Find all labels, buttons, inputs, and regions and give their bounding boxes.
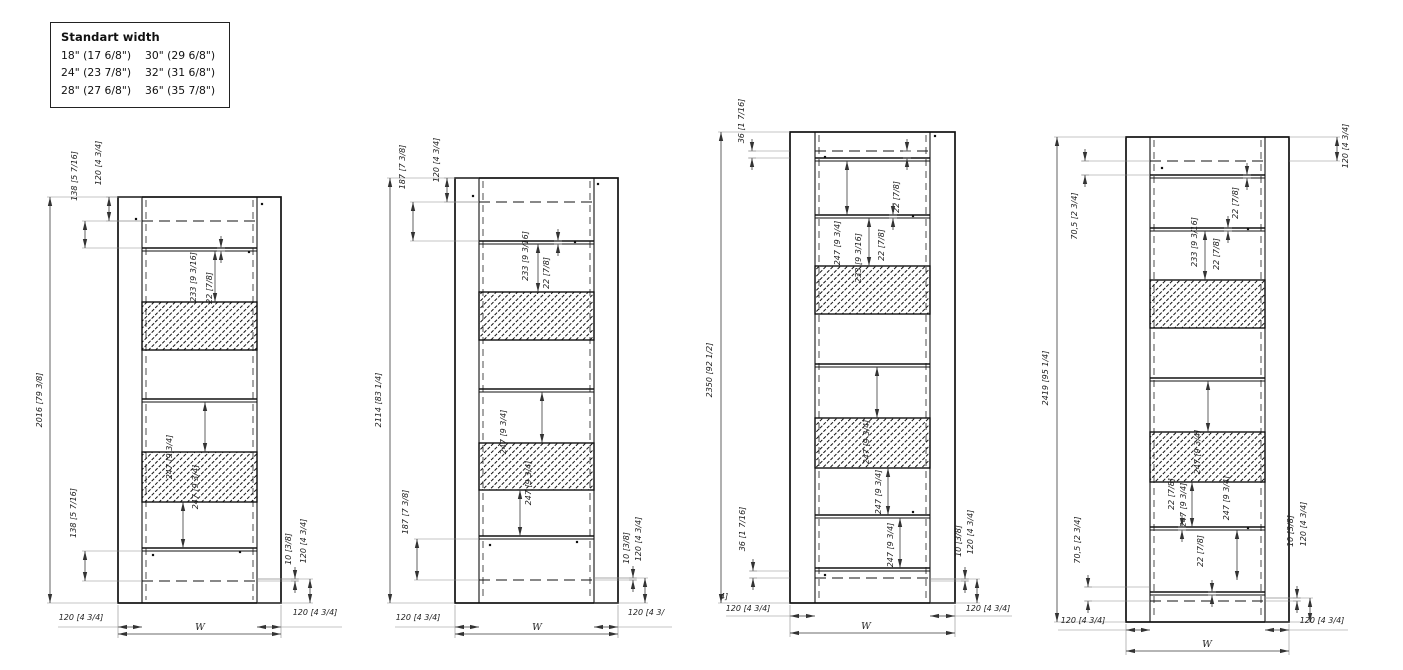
fastener-dot [576,541,578,543]
dim-label: 120 [4 3/4] [432,138,441,183]
dim-label: 10 [3/8] [954,525,963,557]
dim-label: 22 [7/8] [205,272,214,304]
legend-item: 30" (29 6/8") [145,47,219,64]
page-root: { "legend": { "title": "Standart width",… [0,0,1403,670]
hatched-block [815,266,930,314]
dim-label: 247 [9 3/4] [524,461,533,506]
dim-label: 187 [7 3/8] [401,490,410,535]
fastener-dot [135,218,137,220]
dim-label: 247 [9 3/4] [1222,476,1231,521]
dim-label: 247 [9 3/4] [1179,483,1188,528]
dim-label: 120 [4 3/4] [94,141,103,186]
door-frame-2016: 2016 [79 3/8]120 [4 3/4]138 [5 7/16]233 … [35,141,342,638]
hatched-block [1150,432,1265,482]
dim-label: 120 [4 3/4] [1299,502,1308,547]
dim-label: 10 [3/8] [622,532,631,564]
dim-label: 2419 [95 1/4] [1041,351,1050,406]
dim-label: 120 [4 3/4] [299,519,308,564]
fastener-dot [824,156,826,158]
hatched-block [815,418,930,468]
dim-label: 247 [9 3/4] [874,470,883,515]
dim-label: 233 [9 3/16] [854,233,863,283]
fastener-dot [261,203,263,205]
width-label: W [195,622,206,633]
dim-label: 120 [4 3/ [628,608,666,617]
dim-label: 120 [4 3/4] [726,604,771,613]
dim-label: 247 [9 3/4] [165,435,174,480]
dim-label: 70,5 [2 3/4] [1070,192,1079,239]
legend-item: 32" (31 6/8") [145,64,219,81]
width-label: W [1202,639,1213,650]
fastener-dot [1247,527,1249,529]
dim-label: 2114 [83 1/4] [374,373,383,428]
text-fragment: 4] [720,592,728,601]
dim-label: 22 [7/8] [1167,478,1176,510]
dim-label: 120 [4 3/4] [293,608,338,617]
dim-label: 247 [9 3/4] [1193,430,1202,475]
dim-label: 2350 [92 1/2] [705,343,714,398]
width-label: W [861,621,872,632]
door-frame-2419: 2419 [95 1/4]70,5 [2 3/4]120 [4 3/4]22 [… [1041,124,1350,655]
dim-label: 247 [9 3/4] [833,221,842,266]
legend-item: 24" (23 7/8") [61,64,135,81]
dim-label: 36 [1 7/16] [738,507,747,552]
dim-label: 233 [9 3/16] [1190,217,1199,267]
legend-item: 18" (17 6/8") [61,47,135,64]
dim-label: 22 [7/8] [1231,187,1240,219]
dim-label: 247 [9 3/4] [191,465,200,510]
dim-label: 138 [5 7/16] [69,488,78,538]
dim-label: 22 [7/8] [542,257,551,289]
dim-label: 22 [7/8] [1212,238,1221,270]
dim-label: 120 [4 3/4] [634,517,643,562]
dim-label: 233 [9 3/16] [189,252,198,302]
dim-label: 36 [1 7/16] [737,99,746,144]
fastener-dot [824,574,826,576]
dim-label: 10 [3/8] [1286,515,1295,547]
dim-label: 120 [4 3/4] [1300,616,1345,625]
hatched-block [479,292,594,340]
dim-label: 138 [5 7/16] [70,151,79,201]
dim-label: 10 [3/8] [284,533,293,565]
fastener-dot [912,215,914,217]
dim-label: 120 [4 3/4] [396,613,441,622]
fastener-dot [934,135,936,137]
fastener-dot [597,183,599,185]
dim-label: 247 [9 3/4] [499,410,508,455]
fastener-dot [574,241,576,243]
door-frame-2350: 2350 [92 1/2]36 [1 7/16]247 [9 3/4]22 [7… [705,99,1012,637]
standard-width-legend: Standart width 18" (17 6/8") 30" (29 6/8… [50,22,230,108]
dim-label: 120 [4 3/4] [59,613,104,622]
width-label: W [532,622,543,633]
door-frame-2114: 2114 [83 1/4]120 [4 3/4]187 [7 3/8]233 [… [374,138,672,638]
dim-label: 247 [9 3/4] [862,420,871,465]
legend-grid: 18" (17 6/8") 30" (29 6/8") 24" (23 7/8"… [61,47,219,99]
dim-label: 2016 [79 3/8] [35,373,44,428]
fastener-dot [1247,228,1249,230]
fastener-dot [489,544,491,546]
fastener-dot [912,511,914,513]
legend-title: Standart width [61,30,219,44]
dim-label: 70,5 [2 3/4] [1073,516,1082,563]
dim-label: 120 [4 3/4] [1341,124,1350,169]
fastener-dot [152,554,154,556]
dim-label: 22 [7/8] [1196,535,1205,567]
dim-label: 120 [4 3/4] [966,604,1011,613]
dim-label: 120 [4 3/4] [1061,616,1106,625]
hatched-block [1150,280,1265,328]
dim-label: 22 [7/8] [877,229,886,261]
hatched-block [142,302,257,350]
fastener-dot [239,551,241,553]
dim-label: 120 [4 3/4] [966,510,975,555]
dim-label: 233 [9 3/16] [521,231,530,281]
fastener-dot [248,251,250,253]
legend-item: 28" (27 6/8") [61,82,135,99]
dim-label: 247 [9 3/4] [886,523,895,568]
legend-item: 36" (35 7/8") [145,82,219,99]
fastener-dot [1161,167,1163,169]
fastener-dot [472,195,474,197]
hatched-block [479,443,594,490]
dim-label: 187 [7 3/8] [398,145,407,190]
